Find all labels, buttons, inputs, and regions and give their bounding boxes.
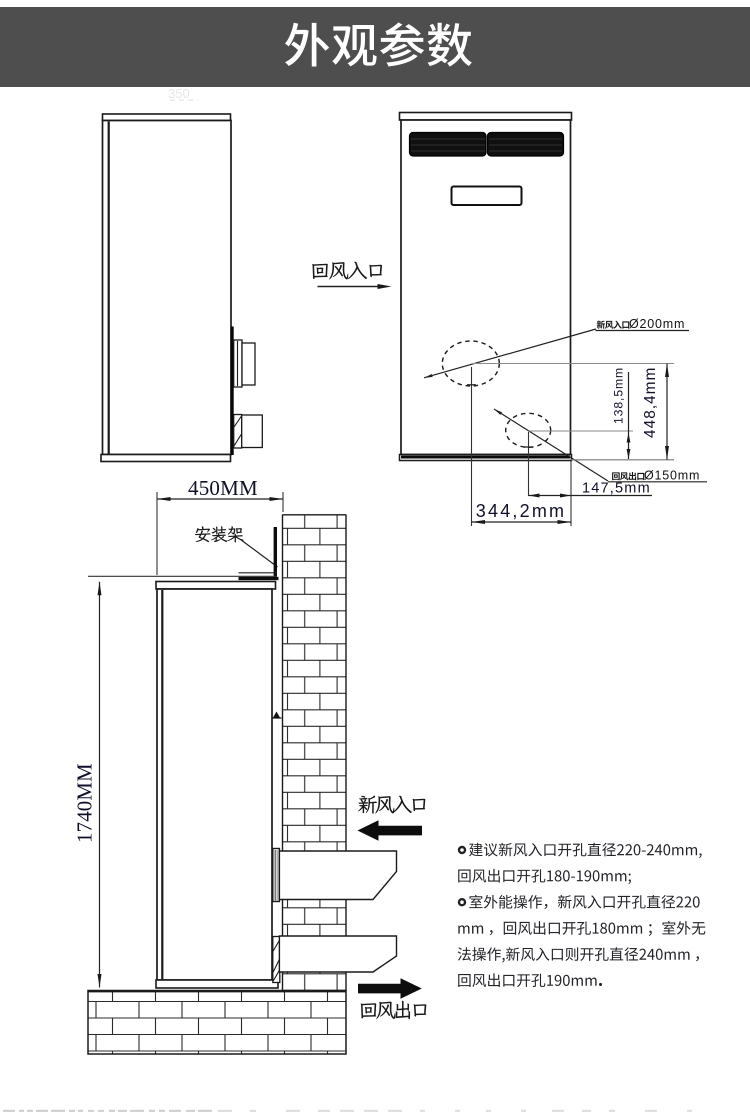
svg-text:1740MM: 1740MM [74, 763, 97, 843]
svg-text:147,5mm: 147,5mm [582, 481, 651, 497]
svg-text:448,4mm: 448,4mm [642, 367, 659, 438]
svg-text:Ø200mm: Ø200mm [629, 317, 685, 331]
svg-text:344,2mm: 344,2mm [476, 501, 566, 521]
svg-text:138,5mm: 138,5mm [612, 367, 626, 424]
svg-text:450MM: 450MM [188, 476, 258, 500]
svg-text:Ø150mm: Ø150mm [644, 469, 700, 483]
svg-text:350: 350 [168, 86, 190, 101]
